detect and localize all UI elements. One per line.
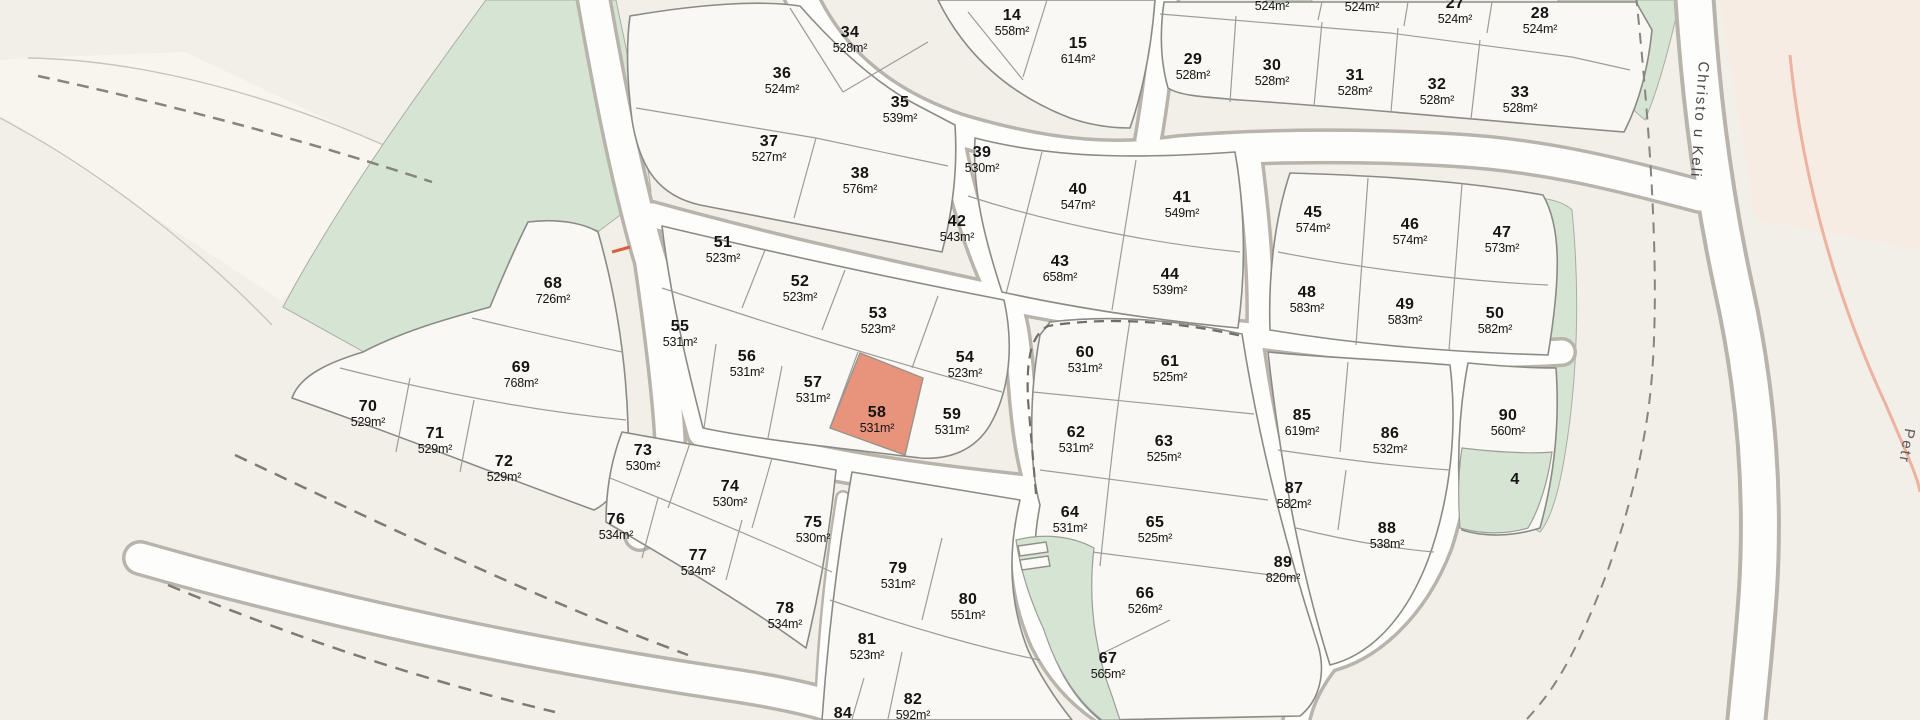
plot-number: 89 [1266,554,1300,571]
plot-label-36[interactable]: 36524m² [765,65,799,96]
plot-label-90[interactable]: 90560m² [1491,407,1525,438]
plot-area: 531m² [881,577,915,591]
plot-area: 583m² [1290,301,1324,315]
plot-label-37[interactable]: 37527m² [752,133,786,164]
plot-label-45[interactable]: 45574m² [1296,204,1330,235]
plot-number: 51 [706,234,740,251]
plot-number: 72 [487,453,521,470]
plot-area: 531m² [1053,521,1087,535]
plot-area: 551m² [951,608,985,622]
plot-number: 67 [1091,650,1125,667]
plot-area: 531m² [1068,361,1102,375]
plot-number: 53 [861,305,895,322]
plot-label-14[interactable]: 14558m² [995,7,1029,38]
plot-number: 55 [663,318,697,335]
plot-area: 525m² [1153,370,1187,384]
plot-number: 86 [1373,425,1407,442]
plot-label-48[interactable]: 48583m² [1290,284,1324,315]
plot-label-38[interactable]: 38576m² [843,165,877,196]
plot-number: 50 [1478,305,1512,322]
plot-label-64[interactable]: 64531m² [1053,504,1087,535]
plot-label-86[interactable]: 86532m² [1373,425,1407,456]
plot-number: 68 [536,275,570,292]
plot-area: 565m² [1091,667,1125,681]
plot-area: 534m² [681,564,715,578]
plot-area: 582m² [1277,497,1311,511]
plot-label-53[interactable]: 53523m² [861,305,895,336]
plot-label-62[interactable]: 62531m² [1059,424,1093,455]
plot-area: 530m² [713,495,747,509]
plot-label-59[interactable]: 59531m² [935,406,969,437]
plot-label-35[interactable]: 35539m² [883,94,917,125]
plot-area: 525m² [1147,450,1181,464]
plot-number: 45 [1296,204,1330,221]
plot-label-82[interactable]: 82592m² [896,691,930,720]
plot-number: 71 [418,425,452,442]
plot-label-41[interactable]: 41549m² [1165,189,1199,220]
plot-area: 523m² [850,648,884,662]
plot-label-4[interactable]: 4 [1510,471,1519,488]
plot-number: 74 [713,478,747,495]
plot-area: 529m² [351,415,385,429]
plot-number: 14 [995,7,1029,24]
plot-area: 523m² [783,290,817,304]
plot-area: 531m² [730,365,764,379]
plot-label-78[interactable]: 78534m² [768,600,802,631]
plot-area: 592m² [896,708,930,720]
plot-area: 532m² [1373,442,1407,456]
plot-area: 523m² [706,251,740,265]
plot-area: 524m² [1255,0,1289,13]
plot-number: 15 [1061,35,1095,52]
plot-area: 523m² [948,366,982,380]
plot-label-68[interactable]: 68726m² [536,275,570,306]
plot-area: 560m² [1491,424,1525,438]
plot-label-26[interactable]: 26524m² [1345,0,1379,14]
plot-label-43[interactable]: 43658m² [1043,253,1077,284]
plot-number: 52 [783,273,817,290]
plot-label-15[interactable]: 15614m² [1061,35,1095,66]
plot-area: 539m² [1153,283,1187,297]
plot-number: 90 [1491,407,1525,424]
plot-label-75[interactable]: 75530m² [796,514,830,545]
plot-label-42[interactable]: 42543m² [940,213,974,244]
plot-label-73[interactable]: 73530m² [626,442,660,473]
plot-label-524m²[interactable]: 524m² [1255,0,1289,13]
plot-label-69[interactable]: 69768m² [504,359,538,390]
plot-number: 36 [765,65,799,82]
plot-label-77[interactable]: 77534m² [681,547,715,578]
plot-area: 619m² [1285,424,1319,438]
plot-number: 69 [504,359,538,376]
plot-number: 44 [1153,266,1187,283]
plot-label-66[interactable]: 66526m² [1128,585,1162,616]
block-45-50 [1270,173,1558,355]
plot-label-79[interactable]: 79531m² [881,560,915,591]
plot-area: 530m² [965,161,999,175]
plot-area: 531m² [935,423,969,437]
plot-label-51[interactable]: 51523m² [706,234,740,265]
plot-label-56[interactable]: 56531m² [730,348,764,379]
plot-label-29[interactable]: 29528m² [1176,51,1210,82]
plot-number: 30 [1255,57,1289,74]
plot-label-34[interactable]: 34528m² [833,24,867,55]
plot-label-46[interactable]: 46574m² [1393,216,1427,247]
plot-area: 528m² [1503,101,1537,115]
plot-number: 76 [599,511,633,528]
plot-label-27[interactable]: 27524m² [1438,0,1472,26]
plot-label-54[interactable]: 54523m² [948,349,982,380]
plot-area: 576m² [843,182,877,196]
plot-number: 62 [1059,424,1093,441]
plot-number: 46 [1393,216,1427,233]
plot-area: 534m² [768,617,802,631]
plot-label-67[interactable]: 67565m² [1091,650,1125,681]
plot-number: 48 [1290,284,1324,301]
plot-number: 82 [896,691,930,708]
plot-label-76[interactable]: 76534m² [599,511,633,542]
plot-number: 58 [860,404,894,421]
plot-number: 70 [351,398,385,415]
plot-number: 84 [834,705,852,720]
plot-number: 77 [681,547,715,564]
plot-number: 41 [1165,189,1199,206]
plot-number: 43 [1043,253,1077,270]
plot-area: 527m² [752,150,786,164]
plot-area: 524m² [765,82,799,96]
plot-label-47[interactable]: 47573m² [1485,224,1519,255]
plot-area: 529m² [418,442,452,456]
plot-number: 27 [1438,0,1472,12]
plot-number: 63 [1147,433,1181,450]
plot-label-72[interactable]: 72529m² [487,453,521,484]
plot-area: 531m² [663,335,697,349]
plot-area: 528m² [1255,74,1289,88]
plot-area: 582m² [1478,322,1512,336]
plot-area: 768m² [504,376,538,390]
plot-area: 547m² [1061,198,1095,212]
plot-number: 49 [1388,296,1422,313]
plot-area: 538m² [1370,537,1404,551]
plot-area: 524m² [1345,0,1379,14]
plot-label-52[interactable]: 52523m² [783,273,817,304]
plot-number: 81 [850,631,884,648]
plot-area: 583m² [1388,313,1422,327]
plot-number: 80 [951,591,985,608]
plot-number: 37 [752,133,786,150]
plot-number: 34 [833,24,867,41]
plot-number: 57 [796,374,830,391]
plot-area: 531m² [860,421,894,435]
plot-number: 61 [1153,353,1187,370]
plot-area: 726m² [536,292,570,306]
plot-area: 549m² [1165,206,1199,220]
plot-area: 558m² [995,24,1029,38]
plot-area: 658m² [1043,270,1077,284]
plot-label-89[interactable]: 89820m² [1266,554,1300,585]
plot-number: 38 [843,165,877,182]
plot-area: 528m² [833,41,867,55]
plot-number: 59 [935,406,969,423]
plot-area: 524m² [1523,22,1557,36]
plot-area: 530m² [796,531,830,545]
plot-area: 526m² [1128,602,1162,616]
plot-label-44[interactable]: 44539m² [1153,266,1187,297]
plot-label-63[interactable]: 63525m² [1147,433,1181,464]
plot-area: 531m² [1059,441,1093,455]
plot-number: 64 [1053,504,1087,521]
plot-area: 525m² [1138,531,1172,545]
plot-area: 528m² [1338,84,1372,98]
plot-number: 79 [881,560,915,577]
plot-number: 42 [940,213,974,230]
plot-label-58[interactable]: 58531m² [860,404,894,435]
plot-label-30[interactable]: 30528m² [1255,57,1289,88]
plot-label-31[interactable]: 31528m² [1338,67,1372,98]
plot-label-70[interactable]: 70529m² [351,398,385,429]
plot-label-85[interactable]: 85619m² [1285,407,1319,438]
plot-area: 574m² [1296,221,1330,235]
plot-label-74[interactable]: 74530m² [713,478,747,509]
plot-number: 33 [1503,84,1537,101]
plot-label-57[interactable]: 57531m² [796,374,830,405]
plot-area: 531m² [796,391,830,405]
plot-label-49[interactable]: 49583m² [1388,296,1422,327]
plot-label-71[interactable]: 71529m² [418,425,452,456]
plot-label-28[interactable]: 28524m² [1523,5,1557,36]
plot-number: 65 [1138,514,1172,531]
plot-label-81[interactable]: 81523m² [850,631,884,662]
plot-number: 31 [1338,67,1372,84]
plot-label-40[interactable]: 40547m² [1061,181,1095,212]
plot-label-80[interactable]: 80551m² [951,591,985,622]
plot-number: 29 [1176,51,1210,68]
plot-label-39[interactable]: 39530m² [965,144,999,175]
plot-number: 4 [1510,471,1519,488]
plot-number: 39 [965,144,999,161]
plot-area: 528m² [1176,68,1210,82]
plot-area: 820m² [1266,571,1300,585]
plot-number: 35 [883,94,917,111]
plot-area: 530m² [626,459,660,473]
plot-area: 529m² [487,470,521,484]
plot-label-84[interactable]: 84 [834,705,852,720]
plot-number: 75 [796,514,830,531]
plot-area: 573m² [1485,241,1519,255]
plot-number: 87 [1277,480,1311,497]
plot-area: 539m² [883,111,917,125]
plot-number: 28 [1523,5,1557,22]
plot-area: 523m² [861,322,895,336]
plot-area: 543m² [940,230,974,244]
plot-number: 66 [1128,585,1162,602]
plot-label-65[interactable]: 65525m² [1138,514,1172,545]
plot-number: 85 [1285,407,1319,424]
plot-number: 73 [626,442,660,459]
parcel-map: Christo u Keli Petr 34528m²36524m²35539m… [0,0,1920,720]
plot-number: 78 [768,600,802,617]
plot-label-87[interactable]: 87582m² [1277,480,1311,511]
plot-area: 528m² [1420,93,1454,107]
plot-area: 534m² [599,528,633,542]
plot-label-60[interactable]: 60531m² [1068,344,1102,375]
plot-area: 614m² [1061,52,1095,66]
plot-number: 32 [1420,76,1454,93]
plot-label-33[interactable]: 33528m² [1503,84,1537,115]
plot-area: 574m² [1393,233,1427,247]
plot-number: 54 [948,349,982,366]
plot-label-61[interactable]: 61525m² [1153,353,1187,384]
plot-label-55[interactable]: 55531m² [663,318,697,349]
plot-number: 56 [730,348,764,365]
plot-number: 40 [1061,181,1095,198]
plot-number: 47 [1485,224,1519,241]
plot-number: 88 [1370,520,1404,537]
plot-label-32[interactable]: 32528m² [1420,76,1454,107]
plot-number: 60 [1068,344,1102,361]
plot-label-50[interactable]: 50582m² [1478,305,1512,336]
plot-label-88[interactable]: 88538m² [1370,520,1404,551]
plot-area: 524m² [1438,12,1472,26]
